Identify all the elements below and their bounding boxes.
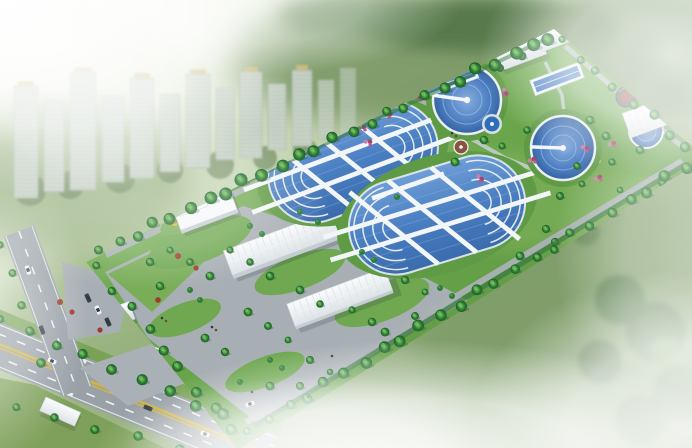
red-shrub bbox=[175, 253, 181, 259]
gazebo bbox=[454, 140, 468, 154]
screenshot-root bbox=[0, 0, 692, 448]
plant-aerial-rendering bbox=[0, 0, 692, 448]
fountain-pool bbox=[482, 114, 502, 134]
